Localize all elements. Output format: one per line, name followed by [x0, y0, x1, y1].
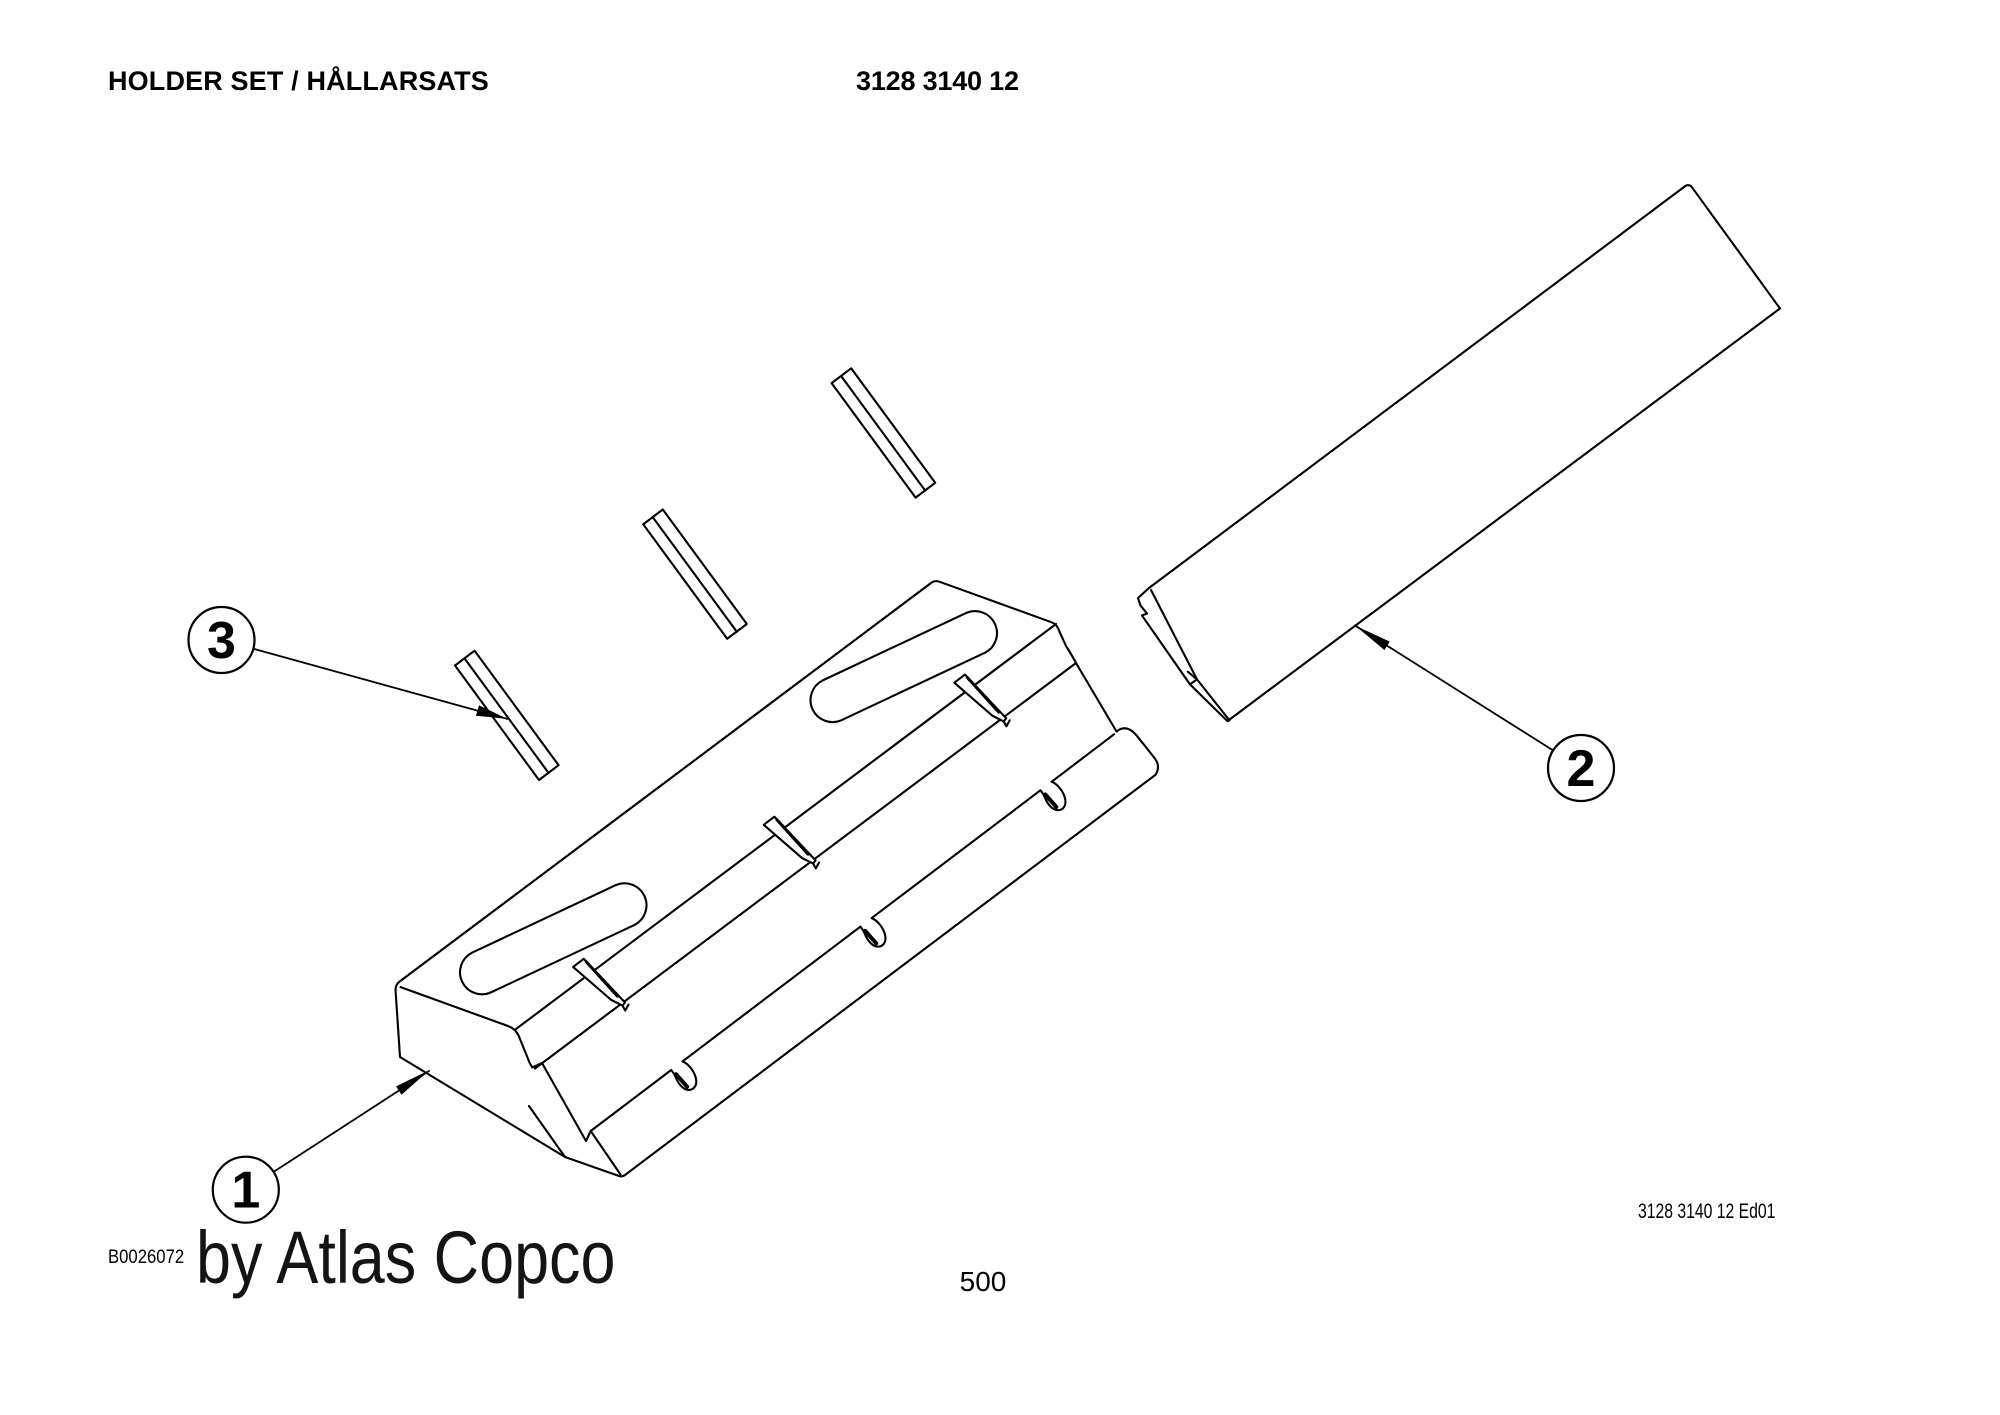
- svg-text:HOLDER SET / HÅLLARSATS: HOLDER SET / HÅLLARSATS: [108, 65, 489, 96]
- svg-text:2: 2: [1567, 740, 1596, 798]
- svg-text:1: 1: [231, 1162, 260, 1220]
- svg-text:500: 500: [960, 1266, 1007, 1297]
- svg-text:by Atlas Copco: by Atlas Copco: [196, 1216, 615, 1299]
- svg-text:3: 3: [207, 612, 236, 670]
- svg-text:3128 3140 12: 3128 3140 12: [856, 66, 1019, 96]
- svg-text:B0026072: B0026072: [108, 1246, 184, 1267]
- svg-text:3128 3140 12 Ed01: 3128 3140 12 Ed01: [1638, 1199, 1775, 1223]
